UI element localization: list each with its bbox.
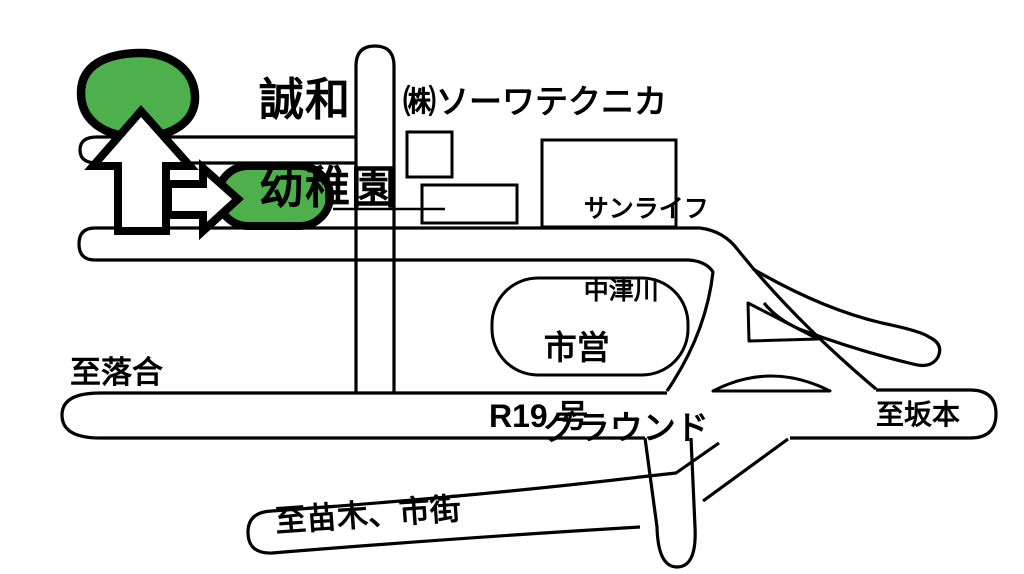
access-map: 誠和 幼稚園 ㈱ソーワテクニカ サンライフ 中津川 市営 グラウンド 至落合 R…	[0, 0, 1024, 574]
traffic-island-upper	[748, 303, 818, 341]
sunlife-line1: サンライフ	[584, 195, 709, 223]
road-naegi-to-r19-edge	[703, 439, 788, 501]
traffic-island-lower	[713, 376, 830, 391]
ground-line1: 市営	[544, 329, 610, 366]
road-diagonal-upper-edge	[700, 228, 876, 389]
building-small-square	[407, 132, 452, 177]
kindergarten-name-line1: 誠和	[259, 74, 351, 125]
road-ramp-stub	[753, 269, 940, 365]
direction-east-label: 至坂本	[876, 399, 960, 431]
ground-label: 市営 グラウンド	[507, 288, 709, 488]
building-company-rectangle	[422, 185, 517, 223]
kindergarten-name-label: 誠和 幼稚園	[205, 34, 397, 254]
kindergarten-name-line2: 幼稚園	[259, 162, 397, 213]
route19-label: R19 号	[489, 398, 589, 435]
direction-west-label: 至落合	[70, 355, 163, 391]
company-label: ㈱ソーワテクニカ	[403, 83, 667, 121]
